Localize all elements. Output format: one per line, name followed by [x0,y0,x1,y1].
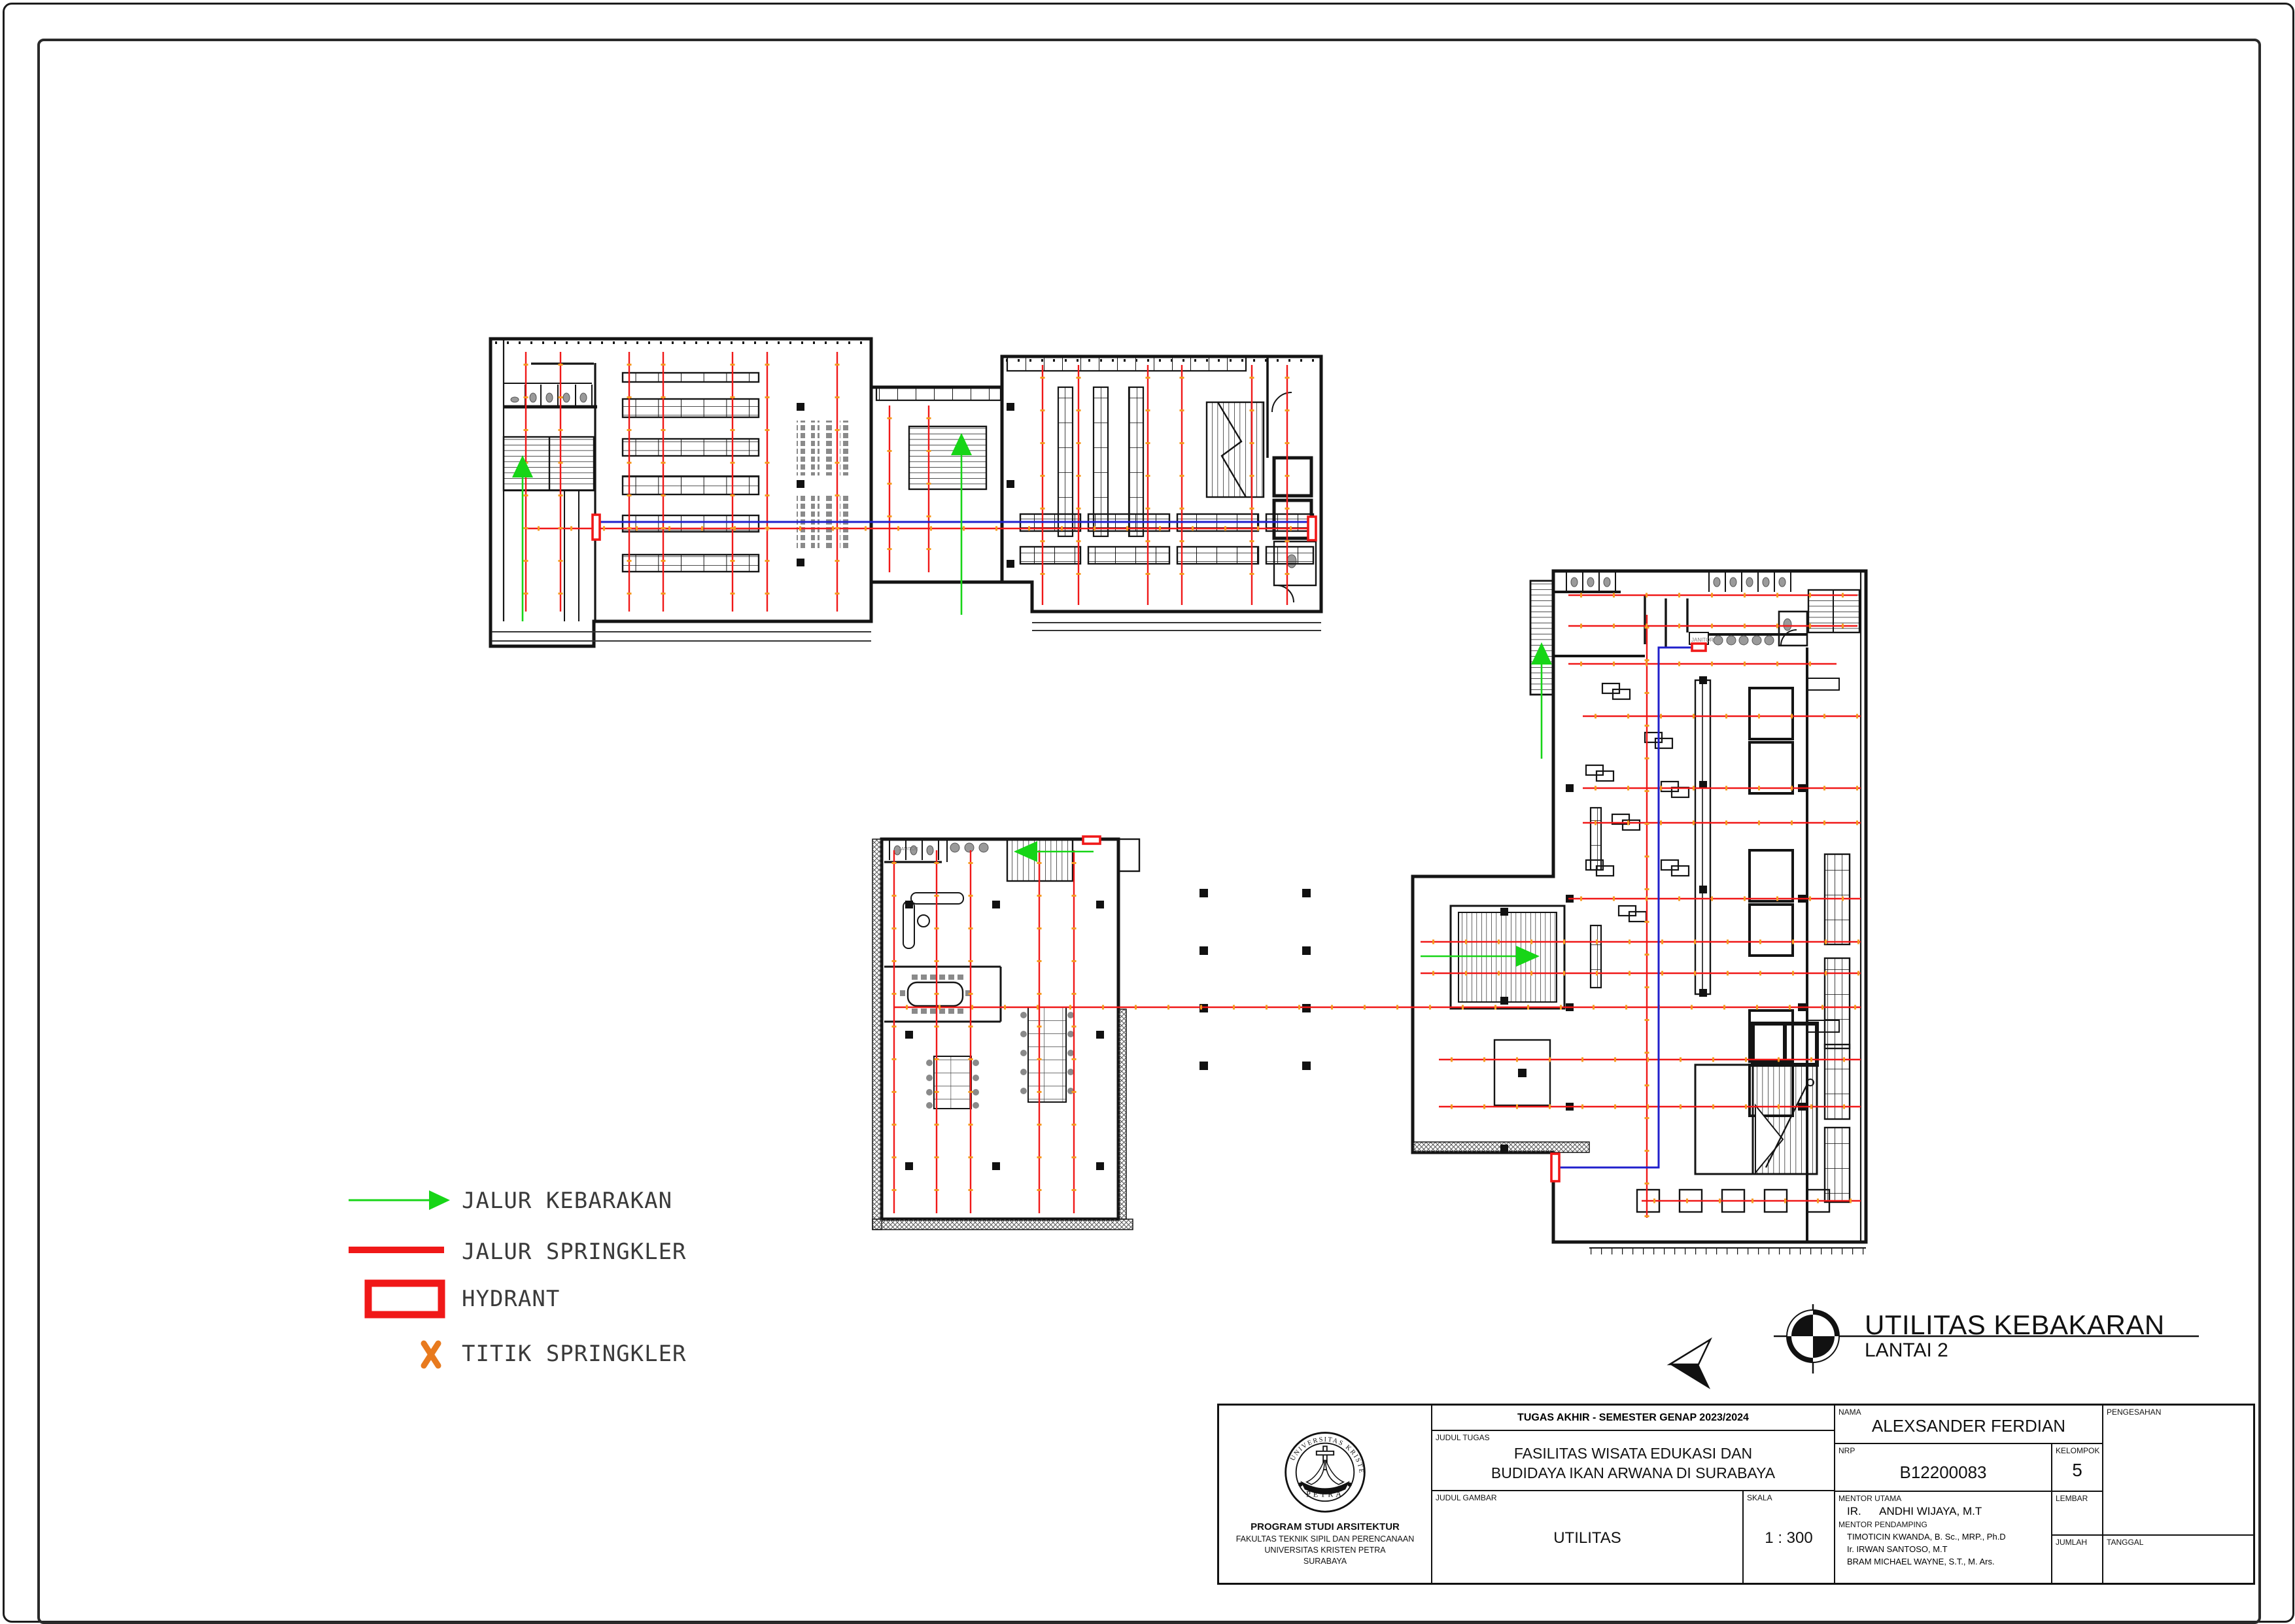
legend-hydrant-icon [368,1283,441,1315]
stair-core-c [1695,1024,1817,1174]
legend-item-hydrant: HYDRANT [462,1286,560,1312]
hydrant-icon [1308,517,1316,540]
janitor-label-b: JANITOR [899,847,918,852]
plaza-columns [1199,889,1311,1070]
institution-kota: SURABAYA [1236,1556,1415,1567]
petra-university-seal: UNIVERSITAS KRISTEN PETRA [1282,1428,1368,1514]
legend-item-titik-springkler: TITIK SPRINGKLER [462,1341,687,1367]
hydrant-icon [1692,644,1706,651]
legend-item-jalur-springkler: JALUR SPRINGKLER [462,1239,687,1265]
fire-path-arrow [1531,642,1552,759]
institution-fakultas: FAKULTAS TEKNIK SIPIL DAN PERENCANAAN [1236,1534,1415,1545]
legend-green-arrow [349,1190,450,1210]
legend-x-icon [424,1343,438,1366]
mentor-utama-value: IR. ANDHI WIJAYA, M.T [1835,1505,2051,1518]
utility-lines-blue [597,522,1692,1167]
legend-item-jalur-kebakaran: JALUR KEBARAKAN [462,1188,672,1214]
building-a [491,339,1321,646]
desk-cluster-b2 [1020,1007,1074,1102]
stair-a-connector [909,426,986,489]
lembar-cell: LEMBAR [2052,1492,2103,1536]
nrp-cell: NRP B12200083 [1835,1444,2052,1492]
project-header-cell: TUGAS AKHIR - SEMESTER GENAP 2023/2024 [1432,1406,1835,1431]
long-counter-c [1695,676,1710,997]
mentor-pendamping-2: Ir. IRWAN SANTOSO, M.T [1847,1544,2051,1556]
floor-plan-drawing: JANITOR [0,0,2295,1623]
amphitheater-c [1451,906,1564,1009]
hydrant-icon [593,515,600,540]
institution-program: PROGRAM STUDI ARSITEKTUR [1236,1521,1415,1534]
toilet-stalls-a [511,385,592,407]
hydrant-icon [1551,1154,1559,1181]
nama-cell: NAMA ALEXSANDER FERDIAN [1835,1406,2103,1444]
svg-text:PETRA: PETRA [1306,1490,1344,1499]
shelving-rows-a [623,373,759,572]
title-block: UNIVERSITAS KRISTEN PETRA PROGRAM STUDI … [1217,1404,2255,1585]
institution-cell: UNIVERSITAS KRISTEN PETRA PROGRAM STUDI … [1219,1406,1432,1583]
judul-tugas-cell: JUDUL TUGAS FASILITAS WISATA EDUKASI DAN… [1432,1431,1835,1491]
mentor-cell: MENTOR UTAMA IR. ANDHI WIJAYA, M.T MENTO… [1835,1492,2052,1583]
stair-a-right [1207,356,1268,497]
door-arc [1272,392,1292,412]
pedestal-c [1494,1040,1550,1105]
north-arrow-icon [1670,1339,1710,1389]
judul-gambar-cell: JUDUL GAMBAR UTILITAS [1432,1491,1744,1583]
legend-red-line [349,1247,444,1253]
pengesahan-cell: PENGESAHAN [2103,1406,2255,1536]
building-b: JANITOR [872,839,1139,1230]
mentor-pendamping-3: BRAM MICHAEL WAYNE, S.T., M. Ars. [1847,1556,2051,1568]
drawing-title: UTILITAS KEBAKARAN [1865,1309,2165,1341]
exhibit-tables-c [1586,683,1689,922]
institution-universitas: UNIVERSITAS KRISTEN PETRA [1236,1545,1415,1556]
building-c: JANITOR [1413,571,1866,1254]
janitor-label-c: JANITOR [1691,637,1714,643]
display-cases-c [1825,854,1850,1202]
mentor-pendamping-1: TIMOTICIN KWANDA, B. Sc., MRP., Ph.D [1847,1531,2051,1544]
jumlah-cell: JUMLAH [2052,1536,2103,1583]
conference-room-b [884,967,1001,1022]
skala-cell: SKALA 1 : 300 [1744,1491,1835,1583]
drawing-subtitle: LANTAI 2 [1865,1339,1948,1362]
tanggal-cell: TANGGAL [2103,1536,2255,1583]
hydrant-icon [1083,837,1100,844]
kelompok-cell: KELOMPOK 5 [2052,1444,2103,1492]
toilets-c [1553,571,1807,656]
fire-path-arrows [512,433,1552,967]
legend-symbols [349,1190,450,1366]
